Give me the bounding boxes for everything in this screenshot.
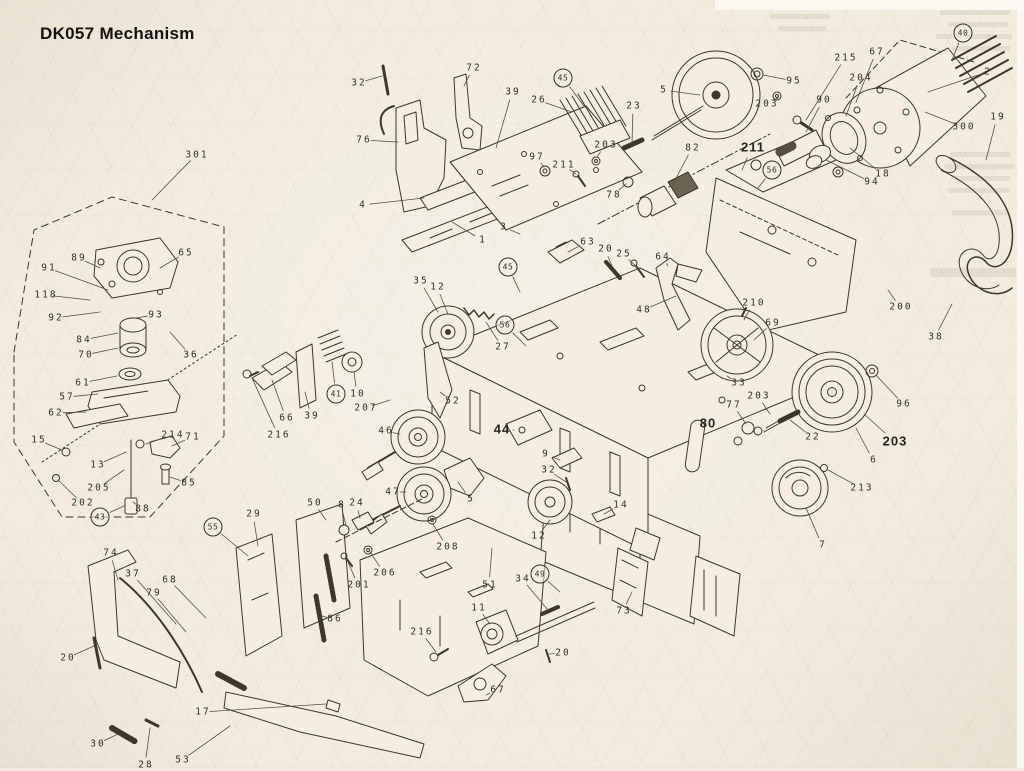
exploded-diagram-art [0, 0, 1024, 768]
scanned-manual-page: { "page": { "title": "DK057 Mechanism", … [0, 0, 1024, 768]
drive-belt [933, 152, 1013, 294]
top-left-bracket-group [381, 66, 482, 212]
drive-motor [793, 36, 1012, 177]
page-title: DK057 Mechanism [40, 24, 195, 44]
flywheel [652, 51, 781, 140]
